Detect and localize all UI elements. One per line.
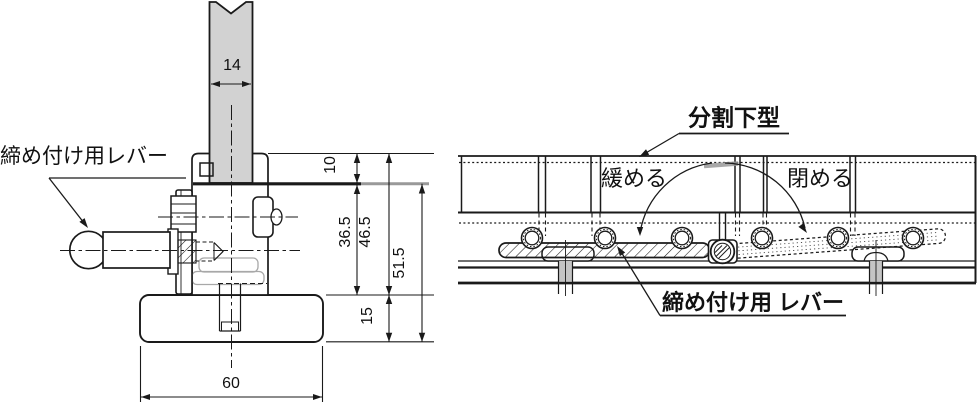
dim-upper-total: 46.5 xyxy=(358,216,374,247)
front-leader xyxy=(49,178,186,228)
drawing-lineart xyxy=(0,0,978,404)
side-lever-label: 締め付け用 レバー xyxy=(662,292,844,314)
split-die-blocks xyxy=(458,156,976,283)
loosen-label: 緩める xyxy=(601,168,667,190)
side-leaders xyxy=(617,134,846,316)
front-lever-label: 締め付け用レバー xyxy=(0,146,168,167)
technical-drawing-canvas: 締め付け用レバー 14 10 36.5 46.5 51.5 15 60 分割下型… xyxy=(0,0,978,404)
dim-lower-total: 51.5 xyxy=(392,247,408,278)
lever-pivot xyxy=(709,240,738,264)
dim-top-offset: 10 xyxy=(323,156,339,174)
dim-base-width: 60 xyxy=(222,376,240,392)
dim-base-height: 15 xyxy=(360,307,376,325)
side-view xyxy=(458,134,976,316)
dim-punch-width: 14 xyxy=(223,58,241,74)
hidden-joint-lines xyxy=(539,214,855,237)
dim-mid-height: 36.5 xyxy=(338,216,354,247)
punch xyxy=(210,2,253,183)
rail-lines xyxy=(458,261,976,283)
split-die-label: 分割下型 xyxy=(688,107,780,130)
close-label: 閉める xyxy=(787,168,853,190)
clamp-nut xyxy=(171,196,196,232)
